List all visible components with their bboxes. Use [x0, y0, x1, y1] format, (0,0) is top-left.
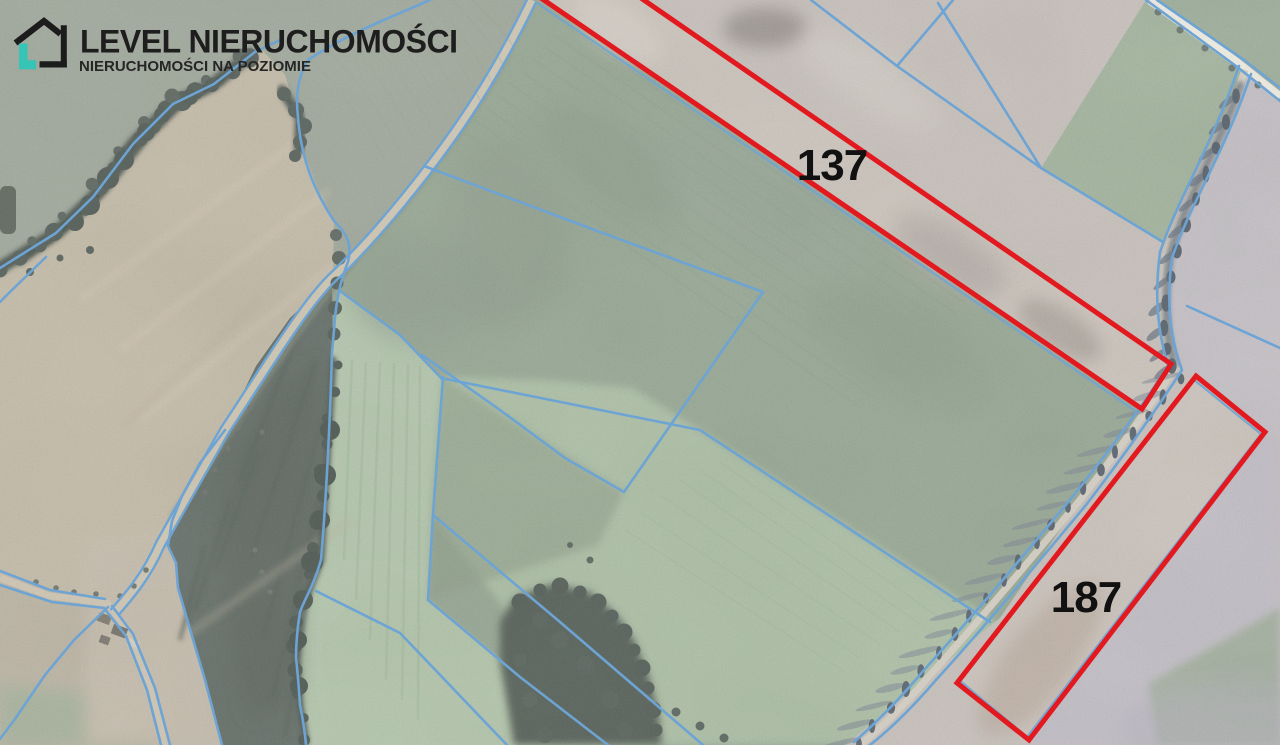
svg-text:NIERUCHOMOŚCI NA POZIOMIE: NIERUCHOMOŚCI NA POZIOMIE — [79, 57, 311, 75]
svg-text:LEVEL NIERUCHOMOŚCI: LEVEL NIERUCHOMOŚCI — [80, 24, 458, 60]
svg-text:137: 137 — [797, 141, 867, 190]
svg-text:187: 187 — [1051, 573, 1121, 622]
